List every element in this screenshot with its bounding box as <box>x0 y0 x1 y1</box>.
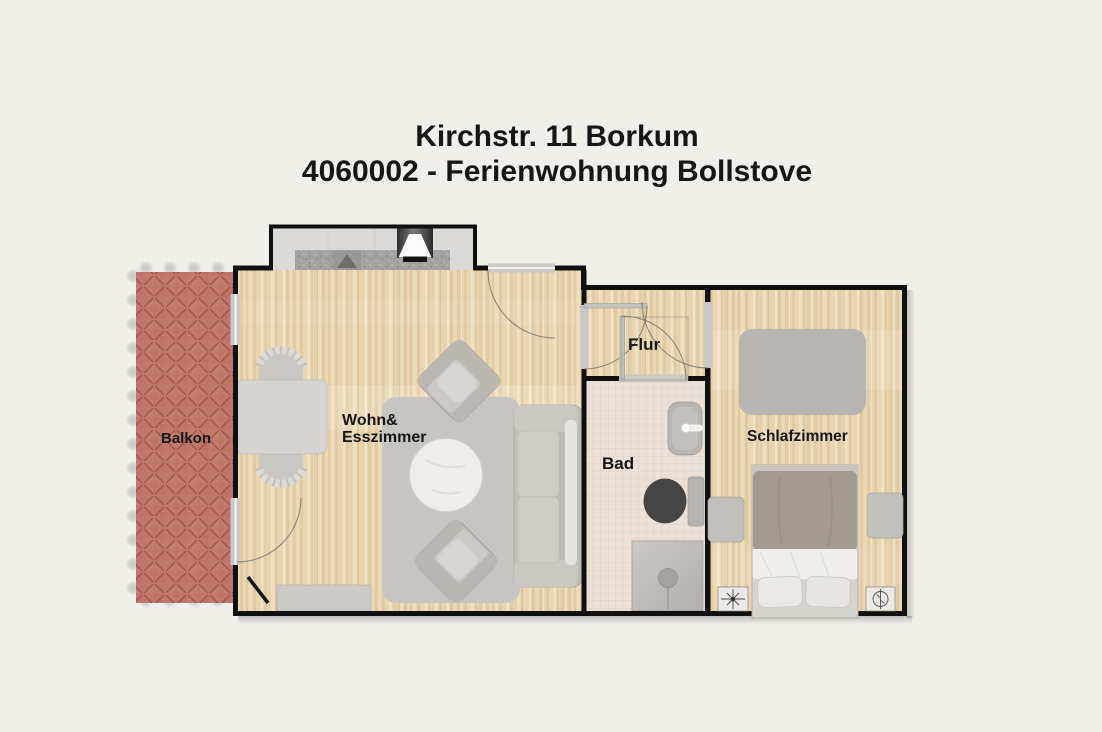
svg-text:Kirchstr. 11 Borkum: Kirchstr. 11 Borkum <box>415 120 698 153</box>
svg-text:Balkon: Balkon <box>161 430 211 447</box>
svg-text:Wohn&: Wohn& <box>342 412 398 429</box>
svg-text:Flur: Flur <box>628 335 660 354</box>
svg-text:Bad: Bad <box>602 454 634 473</box>
svg-text:4060002 - Ferienwohnung Bollst: 4060002 - Ferienwohnung Bollstove <box>302 155 812 188</box>
svg-text:Schlafzimmer: Schlafzimmer <box>747 428 848 445</box>
svg-text:Esszimmer: Esszimmer <box>342 429 427 446</box>
